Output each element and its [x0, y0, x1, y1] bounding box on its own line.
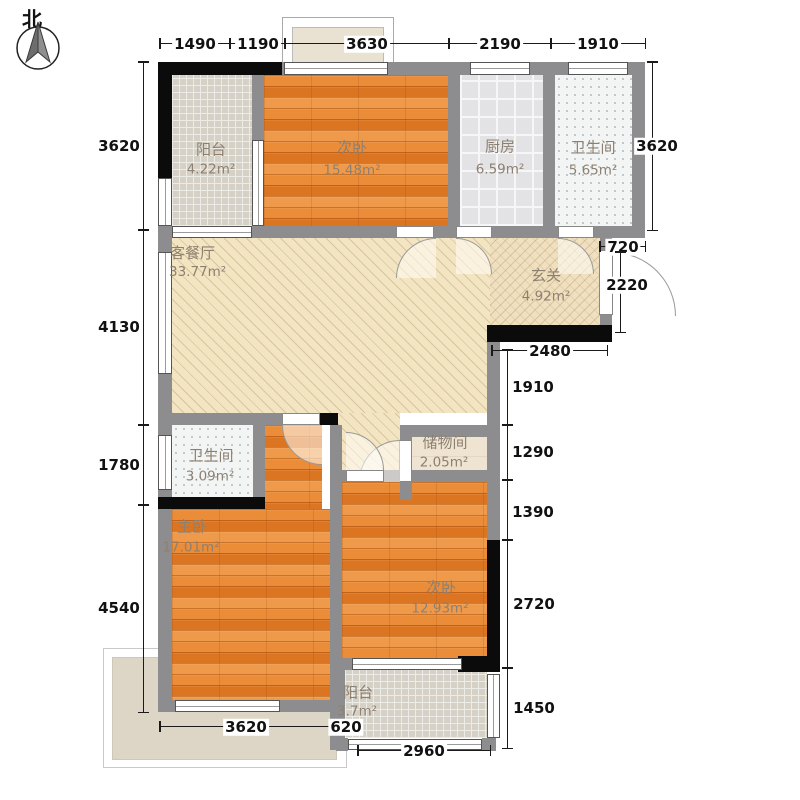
door-leaf-bedroom-top: [396, 226, 434, 238]
wall-black-master-top: [158, 497, 265, 509]
label-bath-top-name: 卫生间: [570, 141, 615, 156]
label-bedroom-bottom-area: 12.93m²: [411, 602, 468, 616]
window-bay: [284, 62, 388, 75]
dim-left-4130: 4130: [96, 319, 142, 336]
door-leaf-kitchen: [456, 226, 492, 238]
label-bedroom-bottom-name: 次卧: [426, 581, 456, 596]
dim-bottom-620: 620: [328, 719, 363, 736]
label-entry-name: 玄关: [531, 269, 561, 284]
dim-right-1290: 1290: [510, 444, 556, 461]
label-kitchen-area: 6.59m²: [476, 163, 525, 177]
dim-right-2720: 2720: [511, 596, 557, 613]
wall-black-balcony-corner: [458, 656, 500, 672]
dim-bottom-2960: 2960: [401, 743, 447, 760]
dim-top-1190: 1190: [235, 36, 281, 53]
dim-right-1910: 1910: [510, 379, 556, 396]
dim-line-right-2720: [507, 540, 508, 668]
label-master-name: 主卧: [177, 520, 207, 535]
dim-top-1490: 1490: [172, 36, 218, 53]
wall-bedroom-right-gray: [487, 500, 500, 540]
window-bath-top: [568, 62, 628, 75]
wall-black-living-end: [320, 413, 338, 425]
dim-top-3630: 3630: [344, 36, 390, 53]
label-bath-mid-name: 卫生间: [188, 449, 233, 464]
dim-line-left-1780: [143, 425, 144, 505]
dim-line-left-4540: [143, 505, 144, 712]
dim-bottom-3620: 3620: [223, 719, 269, 736]
dim-right-1450: 1450: [511, 700, 557, 717]
dim-left-4540: 4540: [96, 600, 142, 617]
label-storage-area: 2.05m²: [420, 456, 469, 470]
dim-top-2190: 2190: [477, 36, 523, 53]
dim-right-1390: 1390: [510, 504, 556, 521]
label-balcony-top-name: 阳台: [196, 143, 226, 158]
label-master-area: 17.01m²: [162, 541, 219, 555]
label-living-area: 33.77m²: [169, 266, 226, 280]
label-bath-top-area: 5.65m²: [569, 164, 618, 178]
door-leaf-master: [282, 413, 320, 425]
label-bedroom-top-name: 次卧: [337, 141, 367, 156]
door-leaf-bath-top: [558, 226, 594, 238]
wall-black-top-left: [158, 62, 282, 75]
dim-right-2220: 2220: [604, 277, 650, 294]
label-kitchen-name: 厨房: [485, 140, 515, 155]
dim-left-1780: 1780: [96, 457, 142, 474]
dim-left-3620: 3620: [96, 138, 142, 155]
label-balcony-top-area: 4.22m²: [187, 163, 236, 177]
post-balcony-left: [336, 738, 348, 751]
compass-icon: [8, 18, 68, 76]
wall-living-right: [487, 342, 500, 425]
label-storage-name: 储物间: [422, 436, 467, 451]
wall-black-bedroom-right: [487, 540, 500, 660]
dim-right-2480: 2480: [527, 343, 573, 360]
dim-line-left-3620: [143, 62, 144, 230]
window-bedroom-balcony: [352, 658, 462, 670]
window-master-bottom: [175, 700, 280, 712]
window-bath-mid-left: [158, 435, 172, 490]
floor-plan: 北: [0, 0, 800, 800]
dim-line-right-1390: [507, 480, 508, 540]
door-leaf-storage: [399, 440, 412, 482]
label-balcony-bottom-area: 3.7m²: [337, 705, 377, 719]
label-bedroom-top-area: 15.48m²: [323, 164, 380, 178]
window-balcony-bedroom: [252, 140, 264, 226]
door-leaf-bedroom-bottom: [346, 470, 384, 482]
window-balcony-top-left: [158, 178, 172, 226]
label-balcony-bottom-name: 阳台: [343, 686, 373, 701]
wall-black-entry-bottom: [487, 325, 612, 342]
dim-right-720: 720: [605, 239, 640, 256]
dim-line-right-1910: [507, 350, 508, 425]
label-entry-area: 4.92m²: [522, 290, 571, 304]
label-bath-mid-area: 3.09m²: [186, 470, 235, 484]
dim-top-1910: 1910: [575, 36, 621, 53]
wall-kitchen-right: [543, 62, 555, 238]
wall-storage-right: [487, 425, 500, 500]
window-balcony-bottom-right: [487, 674, 500, 738]
window-kitchen-top: [470, 62, 530, 75]
label-living-name: 客餐厅: [170, 246, 215, 261]
dim-right-3620: 3620: [634, 138, 680, 155]
wall-black-left: [158, 62, 172, 178]
dim-line-right-1290: [507, 425, 508, 480]
room-master: [172, 509, 330, 700]
window-balcony-living: [172, 226, 252, 238]
dim-line-left-4130: [143, 230, 144, 425]
dim-line-right-1450: [507, 668, 508, 748]
room-bedroom-bottom: [342, 482, 487, 658]
wall-kitchen-left: [448, 62, 460, 238]
